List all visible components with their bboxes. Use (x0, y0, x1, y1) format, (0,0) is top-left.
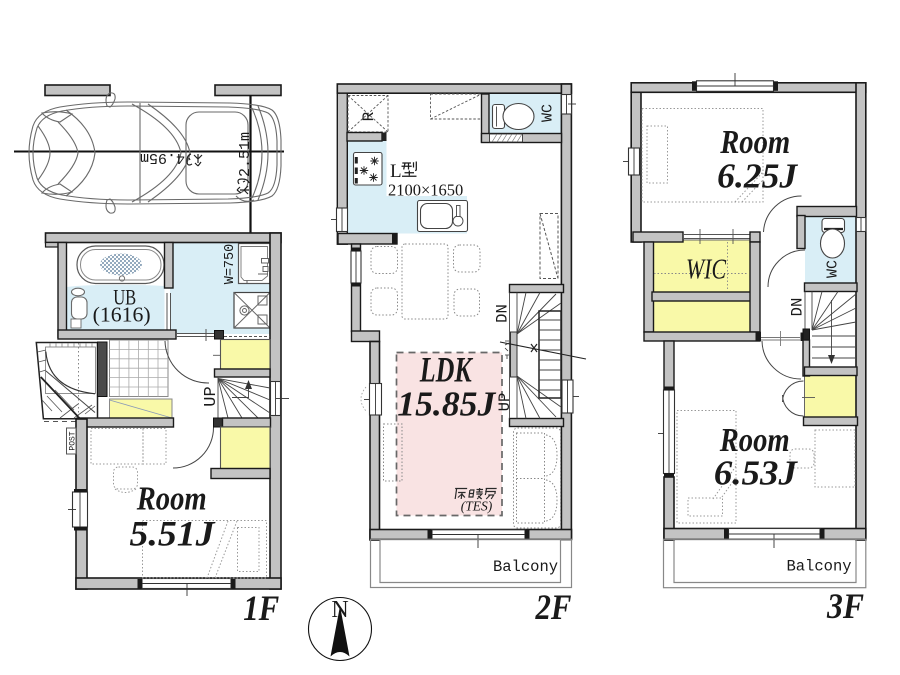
svg-text:WIC: WIC (686, 255, 726, 286)
svg-text:6.53J: 6.53J (714, 454, 799, 493)
svg-text:L: L (390, 161, 402, 182)
svg-text:W=750: W=750 (223, 244, 238, 285)
svg-text:15.85J: 15.85J (397, 385, 497, 424)
svg-text:(TES): (TES) (461, 499, 493, 514)
svg-text:UP: UP (202, 386, 221, 406)
svg-text:2.51m: 2.51m (237, 132, 254, 177)
svg-text:Balcony: Balcony (786, 558, 851, 576)
svg-text:UP: UP (496, 393, 514, 412)
svg-text:1F: 1F (243, 588, 279, 628)
svg-text:R: R (360, 111, 378, 121)
svg-text:POST: POST (69, 431, 78, 450)
svg-text:DN: DN (789, 298, 807, 317)
svg-text:5.51J: 5.51J (130, 514, 216, 554)
svg-text:3F: 3F (826, 586, 864, 626)
svg-text:WC: WC (540, 104, 557, 122)
svg-text:4.95m: 4.95m (140, 149, 185, 166)
svg-text:(1616): (1616) (93, 303, 151, 327)
svg-text:Balcony: Balcony (493, 558, 558, 576)
svg-text:2100×1650: 2100×1650 (388, 181, 463, 200)
svg-text:Room: Room (136, 481, 207, 518)
svg-text:WC: WC (825, 260, 842, 278)
svg-text:DN: DN (494, 304, 512, 323)
svg-text:Room: Room (719, 124, 790, 161)
svg-text:6.25J: 6.25J (717, 157, 799, 196)
svg-text:2F: 2F (535, 587, 572, 627)
svg-text:LDK: LDK (419, 350, 474, 390)
